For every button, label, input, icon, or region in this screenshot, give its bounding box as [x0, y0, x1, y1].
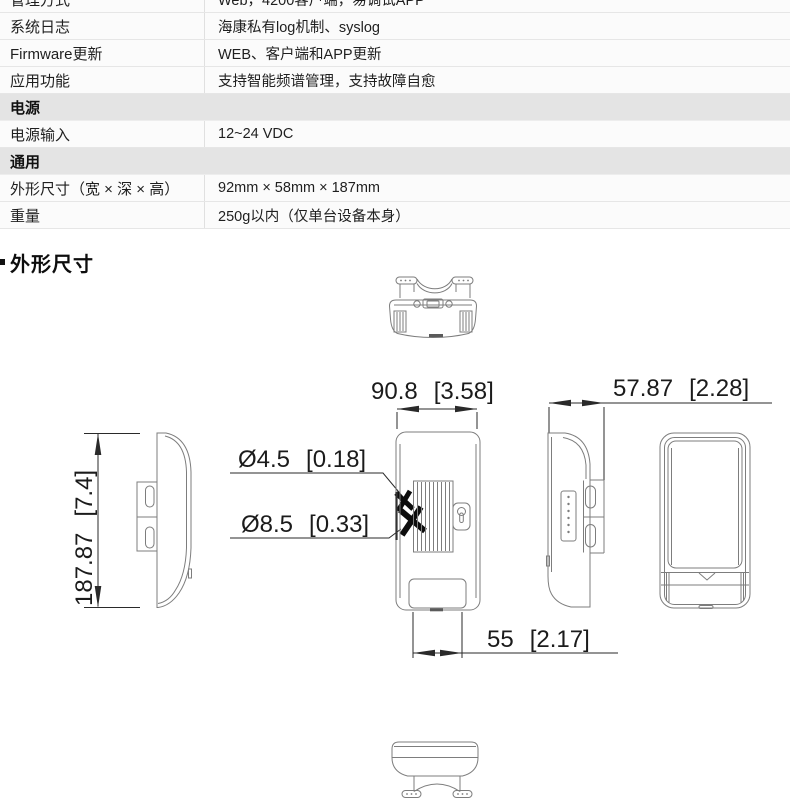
dimension-bottom-width: 55[2.17]: [413, 612, 618, 658]
dimension-label: Ø4.5[0.18]: [238, 446, 366, 473]
leader-hole-large: Ø8.5[0.33]: [230, 511, 401, 538]
table-row: Firmware更新 WEB、客户端和APP更新: [0, 40, 790, 67]
dimension-label: 187.87[7.4]: [71, 470, 98, 606]
table-row: 管理方式 Web，4200客户端，易调试APP: [0, 0, 790, 13]
dimension-label: 90.8[3.58]: [371, 378, 494, 405]
table-row: 系统日志 海康私有log机制、syslog: [0, 13, 790, 40]
table-row: 应用功能 支持智能频谱管理，支持故障自愈: [0, 67, 790, 94]
spec-label: 管理方式: [0, 0, 205, 12]
spec-value: 250g以内（仅单台设备本身）: [205, 205, 410, 226]
spec-label: 系统日志: [0, 13, 205, 39]
spec-table: 管理方式 Web，4200客户端，易调试APP 系统日志 海康私有log机制、s…: [0, 0, 790, 229]
spec-value: 12~24 VDC: [205, 126, 293, 142]
spec-value: 支持智能频谱管理，支持故障自愈: [205, 70, 436, 91]
left-side-view-drawing: [137, 433, 192, 608]
spec-label: 电源输入: [0, 121, 205, 147]
spec-label: 外形尺寸（宽 × 深 × 高）: [0, 175, 205, 201]
table-section-header: 电源: [0, 94, 790, 121]
spec-value: 92mm × 58mm × 187mm: [205, 180, 380, 196]
table-row: 外形尺寸（宽 × 深 × 高） 92mm × 58mm × 187mm: [0, 175, 790, 202]
table-row: 重量 250g以内（仅单台设备本身）: [0, 202, 790, 229]
right-side-view-drawing: [547, 433, 605, 607]
front-view-drawing: [660, 433, 750, 609]
spec-value: WEB、客户端和APP更新: [205, 43, 382, 64]
bottom-view-drawing: [392, 742, 478, 798]
table-section-header: 通用: [0, 148, 790, 175]
spec-label: Firmware更新: [0, 40, 205, 66]
spec-label: 重量: [0, 202, 205, 228]
leader-hole-small: Ø4.5[0.18]: [230, 446, 403, 497]
dimension-height: 187.87[7.4]: [71, 434, 140, 608]
dimension-width-top: 90.8[3.58]: [371, 378, 494, 429]
spec-value: Web，4200客户端，易调试APP: [205, 0, 425, 10]
dimensional-drawing: 90.8[3.58] 57.87[2.28] 187.87[7.4] Ø4.5[…: [0, 264, 790, 803]
spec-value: 海康私有log机制、syslog: [205, 16, 380, 37]
top-view-drawing: [390, 277, 477, 338]
spec-label: 应用功能: [0, 67, 205, 93]
dimension-label: Ø8.5[0.33]: [241, 511, 369, 538]
table-row: 电源输入 12~24 VDC: [0, 121, 790, 148]
dimension-label: 55[2.17]: [487, 626, 590, 653]
dimension-label: 57.87[2.28]: [613, 375, 749, 402]
